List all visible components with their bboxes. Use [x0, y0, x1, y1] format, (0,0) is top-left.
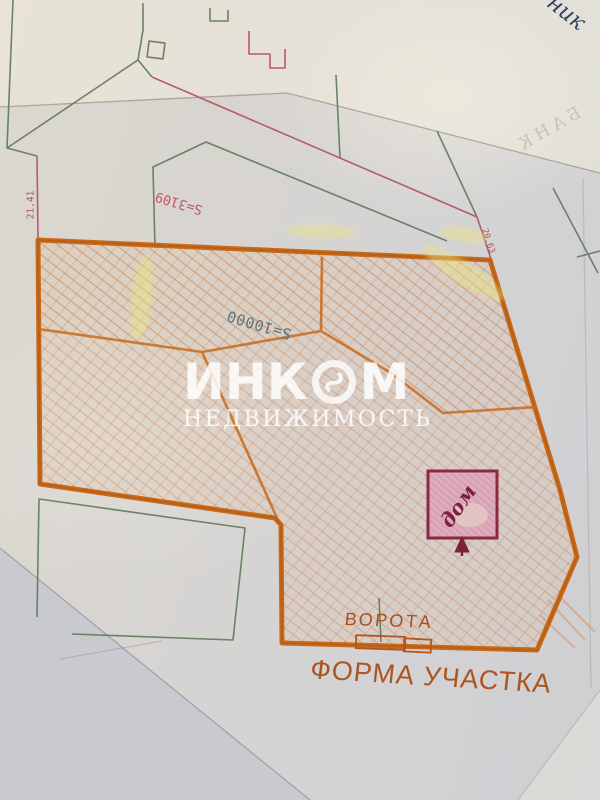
watermark: ИНК М НЕДВИЖИМОСТЬ — [183, 360, 443, 432]
plot-hatching — [38, 240, 595, 650]
left-dimension-line — [37, 156, 38, 240]
paper-fold-top-region — [0, 0, 600, 173]
plot-plan-photo: 21.41 20.63 S=3109 S=10000 дом ВОРОТА ФО… — [0, 0, 600, 800]
left-dimension-label: 21.41 — [26, 191, 37, 220]
lightning-bolt-icon — [321, 369, 347, 395]
watermark-brand-right: М — [360, 360, 410, 404]
green-diagonal-corner — [437, 131, 477, 217]
gate-label: ВОРОТА — [344, 609, 435, 633]
watermark-logo-icon — [312, 360, 356, 404]
green-lines-right — [553, 188, 600, 273]
watermark-brand: ИНК М — [183, 360, 443, 404]
watermark-brand-left: ИНК — [183, 360, 308, 404]
